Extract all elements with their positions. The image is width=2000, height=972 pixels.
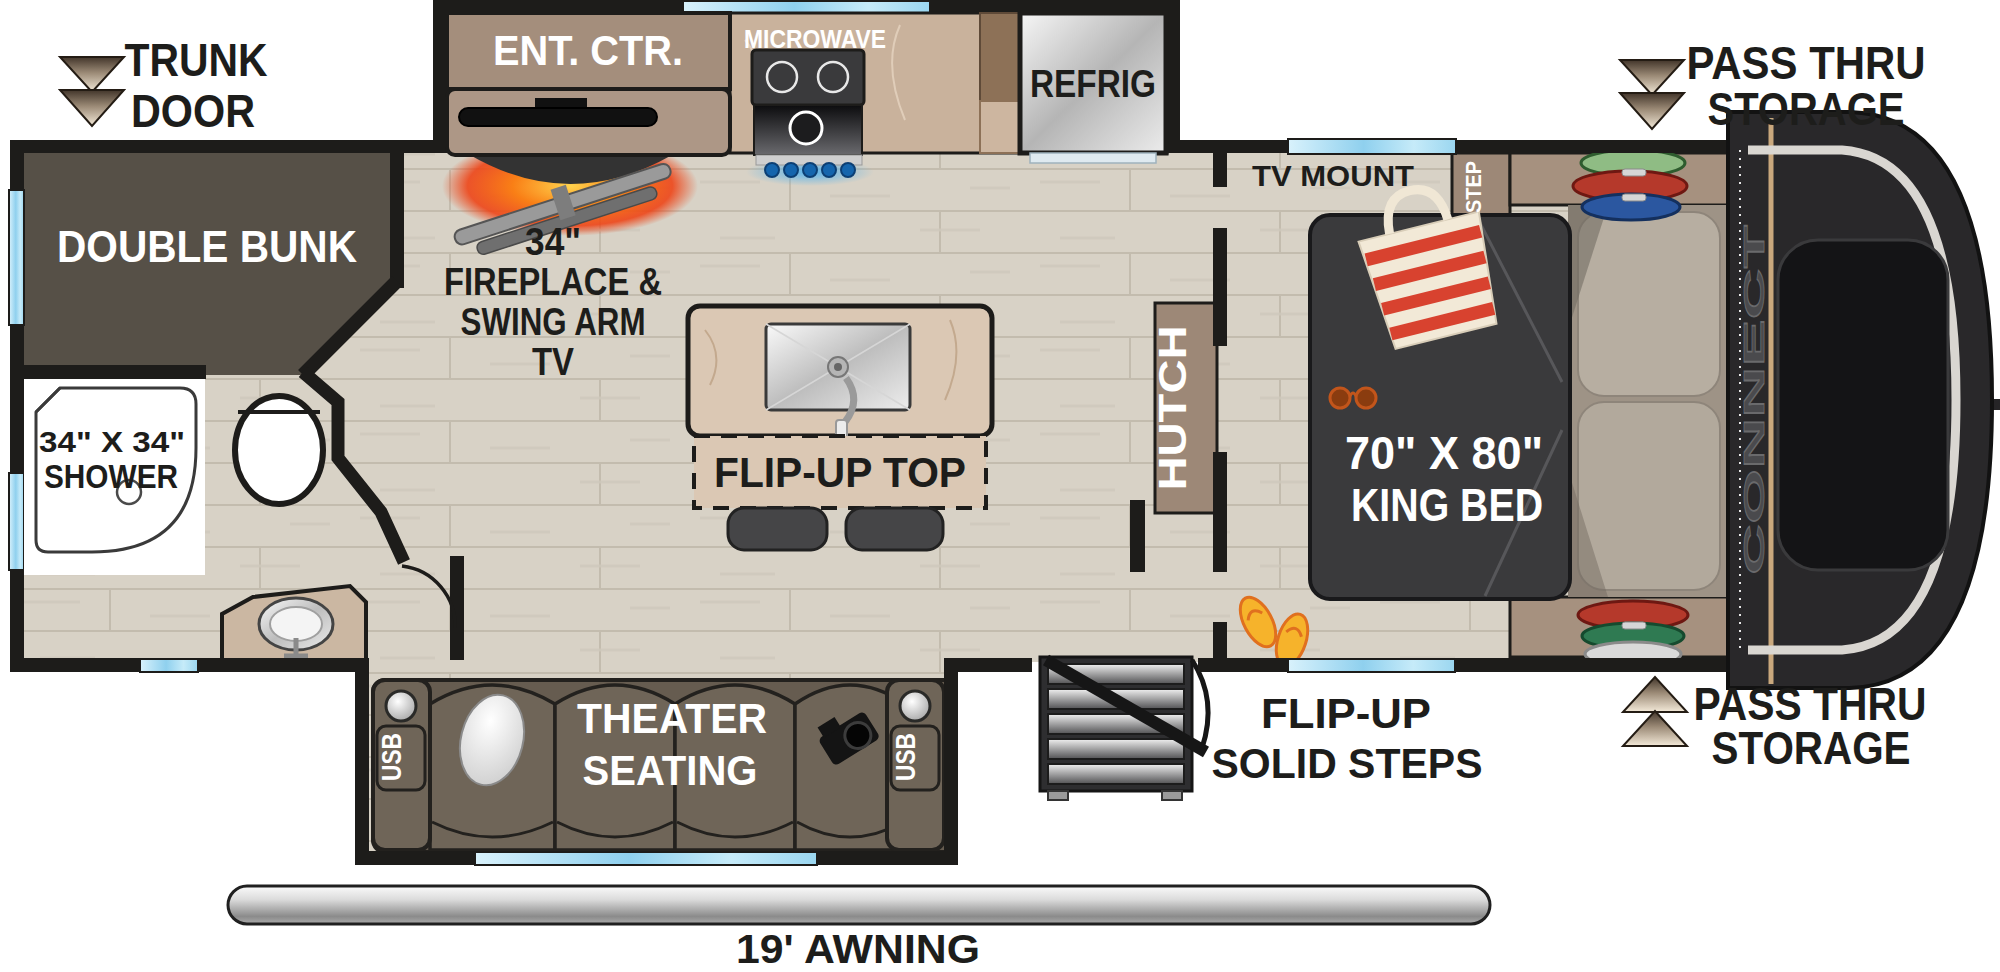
microwave-label: MICROWAVE xyxy=(744,24,886,54)
bedroom-wall-stub xyxy=(1130,500,1145,572)
fireplace-label: FIREPLACE & xyxy=(444,261,662,303)
entry-steps xyxy=(1040,657,1208,800)
stool xyxy=(846,508,943,550)
sofa-slide-window xyxy=(475,852,817,865)
bottom-wall-mid xyxy=(958,658,1032,672)
tv-wall-stub xyxy=(1213,153,1227,187)
left-window-upper xyxy=(9,190,24,325)
brand-text: CONNECT xyxy=(1737,225,1770,575)
hutch-label: HUTCH xyxy=(1152,326,1194,491)
bath-sink-basin xyxy=(270,607,322,641)
step-wheel xyxy=(1162,791,1182,800)
sofa-slide-wall-left xyxy=(355,658,369,865)
usb-label-right: USB xyxy=(891,733,921,781)
pass-thru-top-label: PASS THRU xyxy=(1687,37,1926,89)
hutch-wall-stub-bottom xyxy=(1213,622,1227,660)
step-label: STEP xyxy=(1461,161,1486,213)
bottom-window-left xyxy=(140,659,198,672)
sofa-slide-wall-right xyxy=(944,658,958,865)
bottom-window-right xyxy=(1288,659,1455,672)
kitchen-slide-wall-left xyxy=(433,0,447,153)
king-bed-label: KING BED xyxy=(1351,479,1543,531)
front-cap: CONNECT xyxy=(1728,112,2000,688)
left-window-lower xyxy=(9,473,24,570)
pillow xyxy=(1578,402,1720,590)
awning xyxy=(228,886,1490,924)
shower-label: SHOWER xyxy=(44,458,178,495)
hutch-wall-stub-upper xyxy=(1213,228,1227,346)
cup-holder-icon xyxy=(900,691,930,721)
storage-discs-bottom xyxy=(1578,600,1688,666)
fireplace-label: TV xyxy=(532,341,575,383)
storage-discs-top xyxy=(1573,146,1687,220)
stool xyxy=(728,508,827,550)
fireplace-label: SWING ARM xyxy=(461,301,646,343)
cabinet-panel-light xyxy=(980,101,1020,153)
bedroom-window-top xyxy=(1288,139,1456,154)
pass-thru-top-label: STORAGE xyxy=(1708,83,1905,135)
pass-thru-bottom-label: STORAGE xyxy=(1712,722,1911,774)
awning-bar xyxy=(228,886,1490,924)
tv-mount-label: TV MOUNT xyxy=(1252,159,1414,192)
shower-label: 34" X 34" xyxy=(39,425,185,458)
fireplace-label: 34" xyxy=(525,221,581,263)
theater-seating-label: THEATER xyxy=(577,695,767,742)
awning-label: 19' AWNING xyxy=(736,927,980,971)
bottom-wall-right xyxy=(1198,658,1740,672)
floorplan-page: CONNECT TRUNK DOOR PASS THRU STORAGE PAS… xyxy=(0,0,2000,972)
double-bunk-label: DOUBLE BUNK xyxy=(57,222,357,271)
cabinet-panel xyxy=(980,13,1020,101)
king-bed-label: 70" X 80" xyxy=(1345,427,1543,479)
hutch-wall-stub-lower xyxy=(1213,452,1227,572)
flip-up-top-label: FLIP-UP TOP xyxy=(714,449,966,496)
tv-bar xyxy=(459,108,657,126)
flip-up-steps-label: SOLID STEPS xyxy=(1212,740,1483,787)
ent-ctr-label: ENT. CTR. xyxy=(493,27,683,74)
top-wall-left xyxy=(10,140,447,153)
bunk-wall-right xyxy=(390,140,404,288)
cup-holder-icon xyxy=(386,691,416,721)
usb-label-left: USB xyxy=(377,733,407,781)
theater-seating-label: SEATING xyxy=(583,747,758,794)
refrig-label: REFRIG xyxy=(1030,63,1156,105)
flip-up-steps-label: FLIP-UP xyxy=(1261,690,1431,737)
sink-drain-hole xyxy=(834,363,842,371)
bunk-wall-bottom xyxy=(10,365,206,379)
trunk-door-label: DOOR xyxy=(131,85,255,137)
pillow xyxy=(1578,212,1720,396)
rv-floorplan-diagram: CONNECT TRUNK DOOR PASS THRU STORAGE PAS… xyxy=(0,0,2000,972)
fridge-vent xyxy=(1030,153,1156,163)
oven-burner-icon xyxy=(790,112,822,144)
step-wheel xyxy=(1048,791,1068,800)
trunk-door-label: TRUNK xyxy=(125,34,268,86)
cap-window xyxy=(1778,240,1948,570)
